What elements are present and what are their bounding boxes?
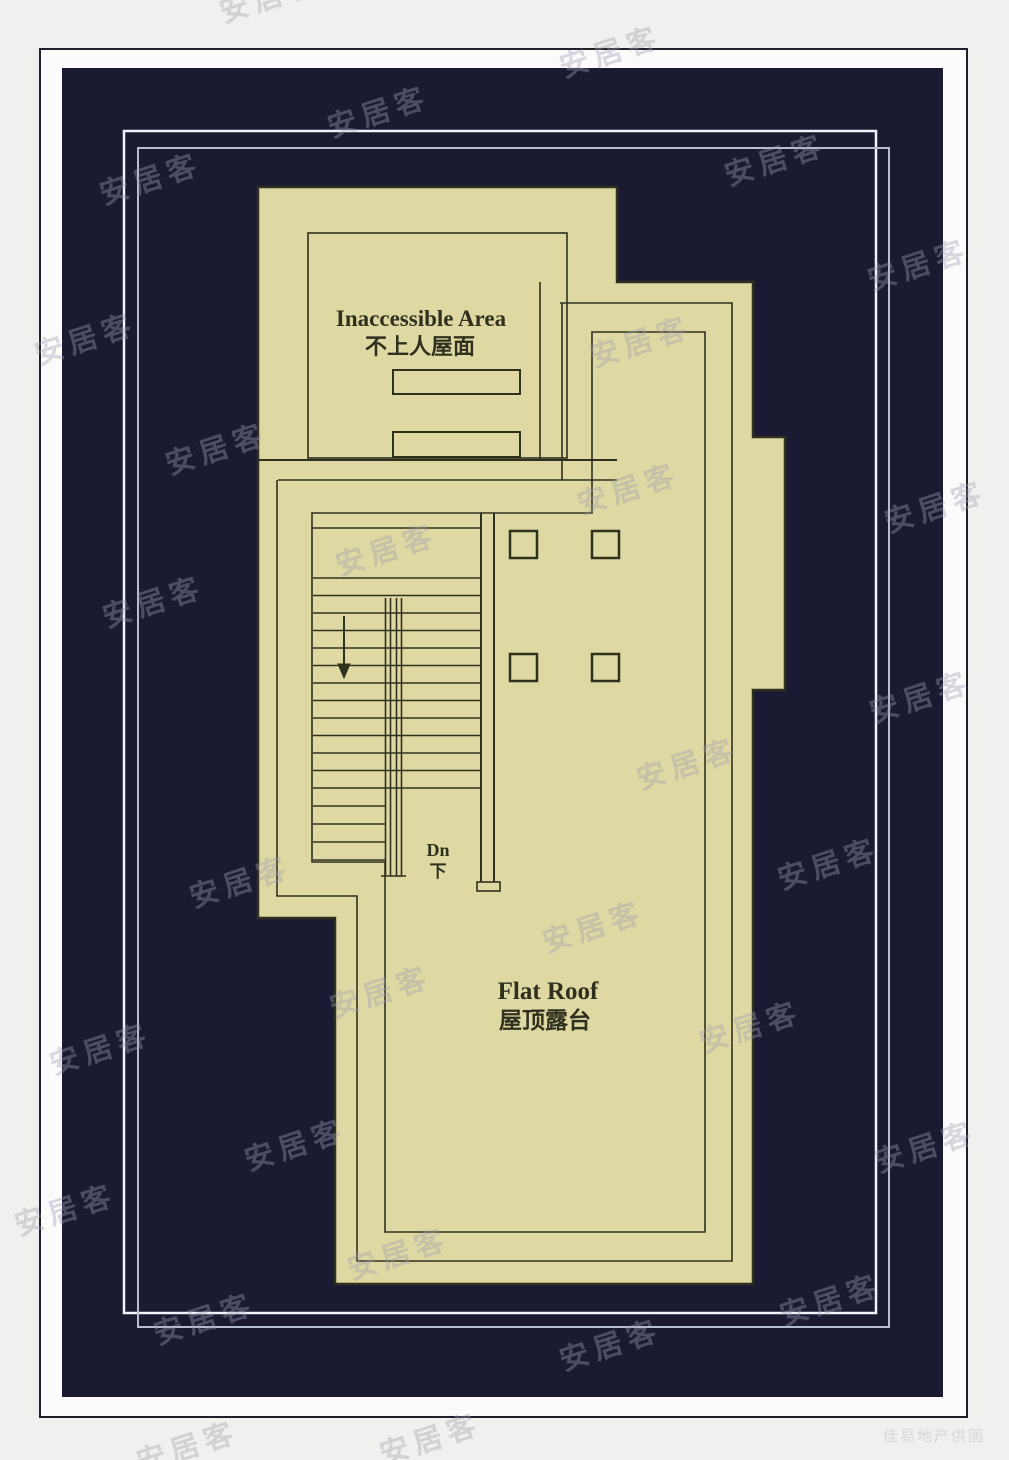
flat-roof-label-en: Flat Roof xyxy=(498,978,599,1005)
source-caption: 佳易地产供图 xyxy=(883,1427,985,1445)
inaccessible-area-label-en: Inaccessible Area xyxy=(336,306,507,331)
floorplan-image: Inaccessible Area 不上人屋面 Dn 下 Flat Roof 屋… xyxy=(0,0,1009,1460)
floorplan-drawing: Inaccessible Area 不上人屋面 Dn 下 Flat Roof 屋… xyxy=(0,0,1009,1460)
flat-roof-label-zh: 屋顶露台 xyxy=(499,1007,591,1034)
stair-down-label-zh: 下 xyxy=(430,862,447,882)
inaccessible-area-label-zh: 不上人屋面 xyxy=(365,335,475,360)
stair-down-label-en: Dn xyxy=(426,840,449,860)
